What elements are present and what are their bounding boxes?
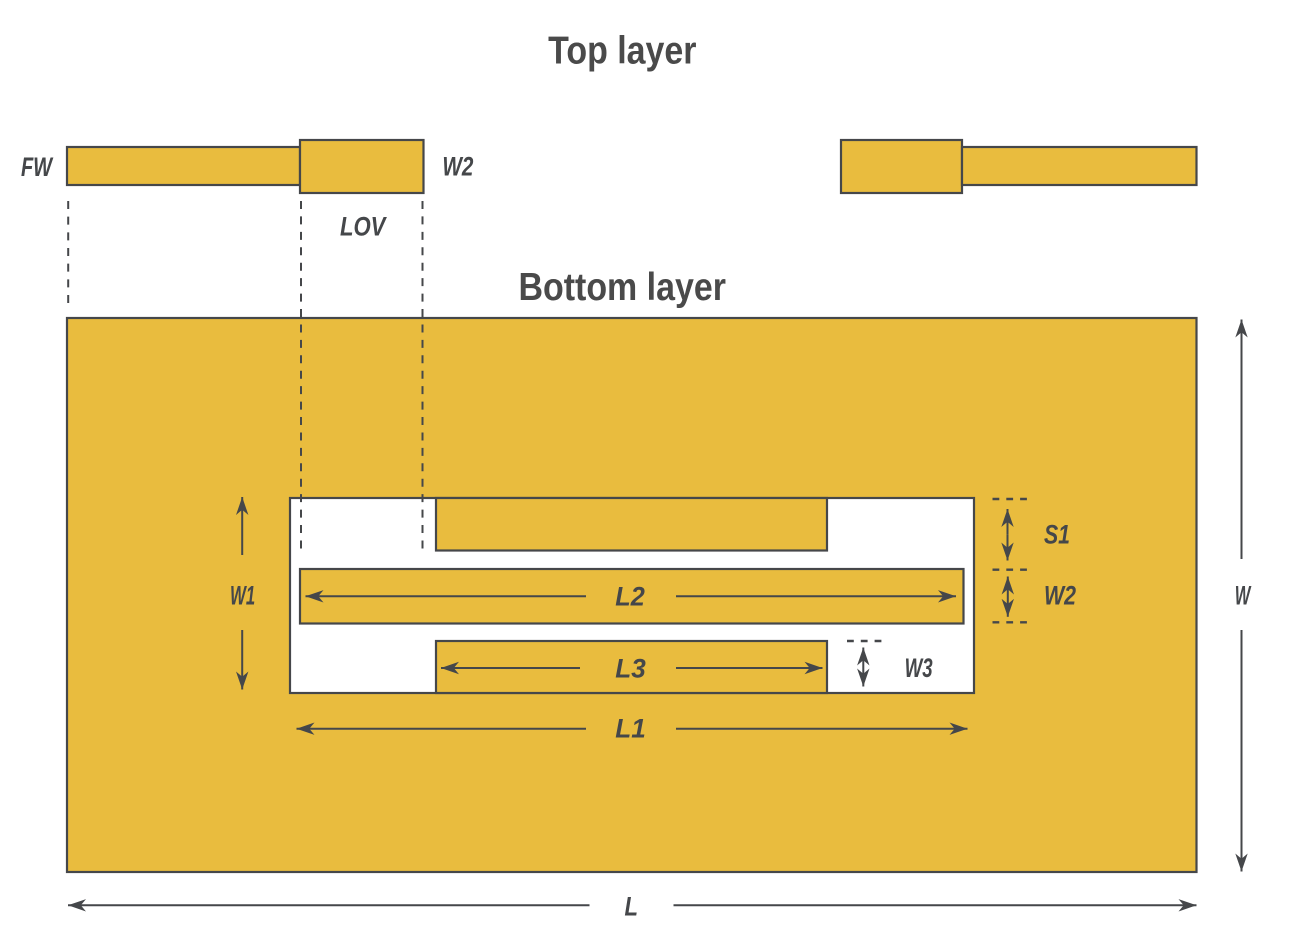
svg-text:Bottom layer: Bottom layer xyxy=(518,265,725,308)
svg-text:W: W xyxy=(1235,580,1252,610)
svg-text:L1: L1 xyxy=(615,713,645,743)
svg-text:W3: W3 xyxy=(905,652,933,682)
svg-text:W2: W2 xyxy=(1044,581,1076,611)
svg-text:L: L xyxy=(625,893,638,923)
svg-text:S1: S1 xyxy=(1044,520,1070,550)
svg-text:W1: W1 xyxy=(230,580,255,610)
svg-text:Top layer: Top layer xyxy=(548,28,696,71)
svg-text:FW: FW xyxy=(21,152,54,183)
svg-text:L2: L2 xyxy=(615,581,645,612)
svg-text:L3: L3 xyxy=(615,653,646,683)
svg-text:LOV: LOV xyxy=(340,213,388,243)
svg-text:W2: W2 xyxy=(442,152,474,182)
